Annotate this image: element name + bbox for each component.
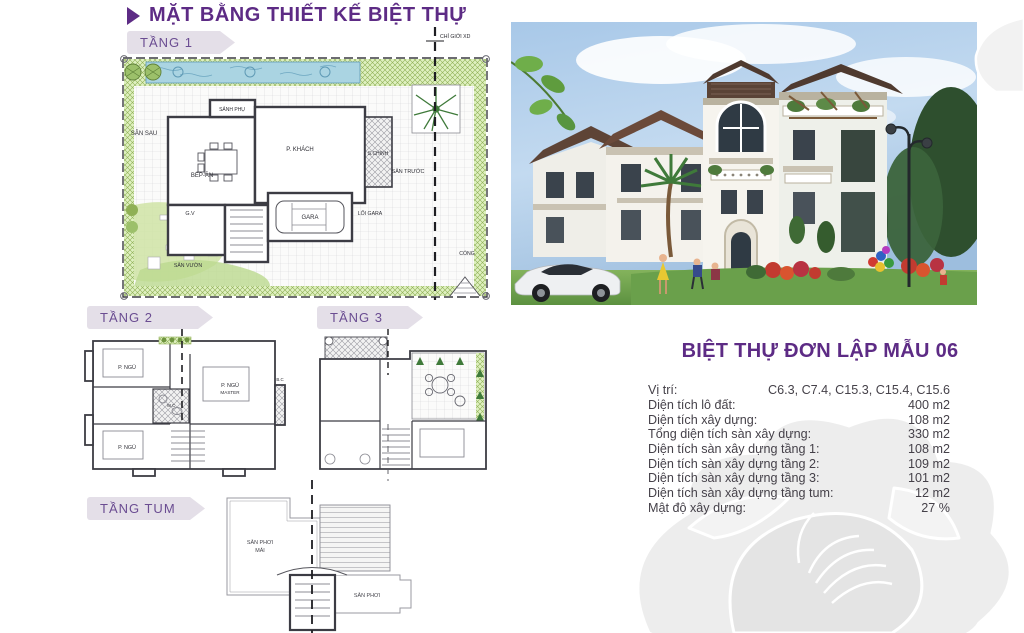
spec-row: Diện tích sàn xây dựng tầng 1:108 m2 — [648, 442, 950, 457]
room-label: SẢNH PHỤ — [219, 106, 245, 113]
corner-petal-watermark — [966, 16, 1024, 92]
floor-banner-tangtum: TẦNG TUM — [87, 497, 205, 520]
spec-value: 27 % — [921, 501, 950, 515]
spec-row: Diện tích sàn xây dựng tầng 3:101 m2 — [648, 471, 950, 486]
triangle-bullet-icon — [127, 7, 140, 25]
room-label: G.V — [185, 211, 195, 217]
spec-row: Diện tích sàn xây dựng tầng tum:12 m2 — [648, 486, 950, 501]
floor-plan-tang2: P. NGỦ P. NGỦ P. NGỦ MASTER W.C B.C — [75, 329, 290, 481]
floor-banner-label: TẦNG 2 — [100, 310, 153, 325]
room-label: SÂN PHƠI — [354, 592, 380, 599]
floor-plan-tang3 — [300, 329, 500, 481]
page-title: MẶT BẰNG THIẾT KẾ BIỆT THỰ — [149, 4, 466, 27]
spec-row: Diện tích sàn xây dựng tầng 2:109 m2 — [648, 456, 950, 471]
spec-value: 109 m2 — [908, 457, 950, 471]
room-label: B.C — [276, 377, 283, 382]
sloped-roof — [320, 505, 390, 571]
room-label: P. KHÁCH — [286, 146, 314, 153]
room-label: MÁI — [255, 547, 265, 554]
spec-table: Vị trí:C6.3, C7.4, C15.3, C15.4, C15.6 D… — [648, 383, 950, 515]
spec-value: 400 m2 — [908, 398, 950, 412]
spec-label: Vị trí: — [648, 383, 677, 397]
spec-row: Diện tích lô đất:400 m2 — [648, 398, 950, 413]
spec-label: Tổng diện tích sàn xây dựng: — [648, 427, 811, 441]
spec-value: C6.3, C7.4, C15.3, C15.4, C15.6 — [768, 383, 950, 397]
floor-banner-label: TẦNG 3 — [330, 310, 383, 325]
floor-plan-tangtum: SÂN PHƠI MÁI SÂN PHƠI — [215, 480, 420, 633]
spec-value: 12 m2 — [915, 486, 950, 500]
spec-label: Diện tích sàn xây dựng tầng 2: — [648, 457, 820, 471]
spec-row: Mật độ xây dựng:27 % — [648, 501, 950, 516]
spec-row: Tổng diện tích sàn xây dựng:330 m2 — [648, 427, 950, 442]
spec-row: Vị trí:C6.3, C7.4, C15.3, C15.4, C15.6 — [648, 383, 950, 398]
spec-value: 108 m2 — [908, 413, 950, 427]
boundary-note: CHỈ GIỚI XD — [440, 33, 471, 40]
room-label: W.C — [167, 403, 175, 408]
room-label: SÂN TRƯỚC — [392, 168, 425, 175]
spec-label: Diện tích sàn xây dựng tầng tum: — [648, 486, 834, 500]
room-label: S.CHÍNH — [368, 150, 389, 157]
villa-render-photo — [511, 22, 977, 305]
page-header: MẶT BẰNG THIẾT KẾ BIỆT THỰ — [127, 4, 466, 27]
room-label: CỔNG — [459, 250, 475, 257]
room-label: P. NGỦ — [118, 444, 136, 451]
spec-label: Diện tích sàn xây dựng tầng 3: — [648, 471, 820, 485]
room-label: P. NGỦ — [221, 382, 239, 389]
spec-label: Mật độ xây dựng: — [648, 501, 746, 515]
floor-banner-tang3: TẦNG 3 — [317, 306, 423, 329]
room-label: GARA — [301, 215, 318, 221]
spec-value: 330 m2 — [908, 427, 950, 441]
spec-label: Diện tích sàn xây dựng tầng 1: — [648, 442, 820, 456]
villa-model-title: BIỆT THỰ ĐƠN LẬP MẪU 06 — [655, 340, 985, 363]
room-label: SÂN SAU — [131, 130, 157, 137]
room-label: SÂN VƯỜN — [174, 262, 202, 269]
brochure-page: MẶT BẰNG THIẾT KẾ BIỆT THỰ TẦNG 1 TẦNG 2… — [0, 0, 1024, 633]
room-label: BẾP-ĂN — [191, 172, 213, 179]
villa-main-wing — [779, 64, 903, 272]
spec-value: 108 m2 — [908, 442, 950, 456]
spec-label: Diện tích xây dựng: — [648, 413, 757, 427]
room-label: SÂN PHƠI — [247, 539, 273, 546]
floor-banner-label: TẦNG TUM — [100, 501, 176, 516]
floor-plan-tang1: CHỈ GIỚI XD SÂN SAU BẾP-ĂN SẢNH PHỤ P. K… — [120, 27, 490, 300]
spec-row: Diện tích xây dựng:108 m2 — [648, 412, 950, 427]
floor-banner-tang2: TẦNG 2 — [87, 306, 213, 329]
spec-value: 101 m2 — [908, 471, 950, 485]
room-label: LỐI GARA — [358, 210, 383, 217]
room-label: MASTER — [220, 390, 240, 395]
spec-label: Diện tích lô đất: — [648, 398, 736, 412]
room-label: P. NGỦ — [118, 364, 136, 371]
villa-main — [703, 60, 779, 272]
